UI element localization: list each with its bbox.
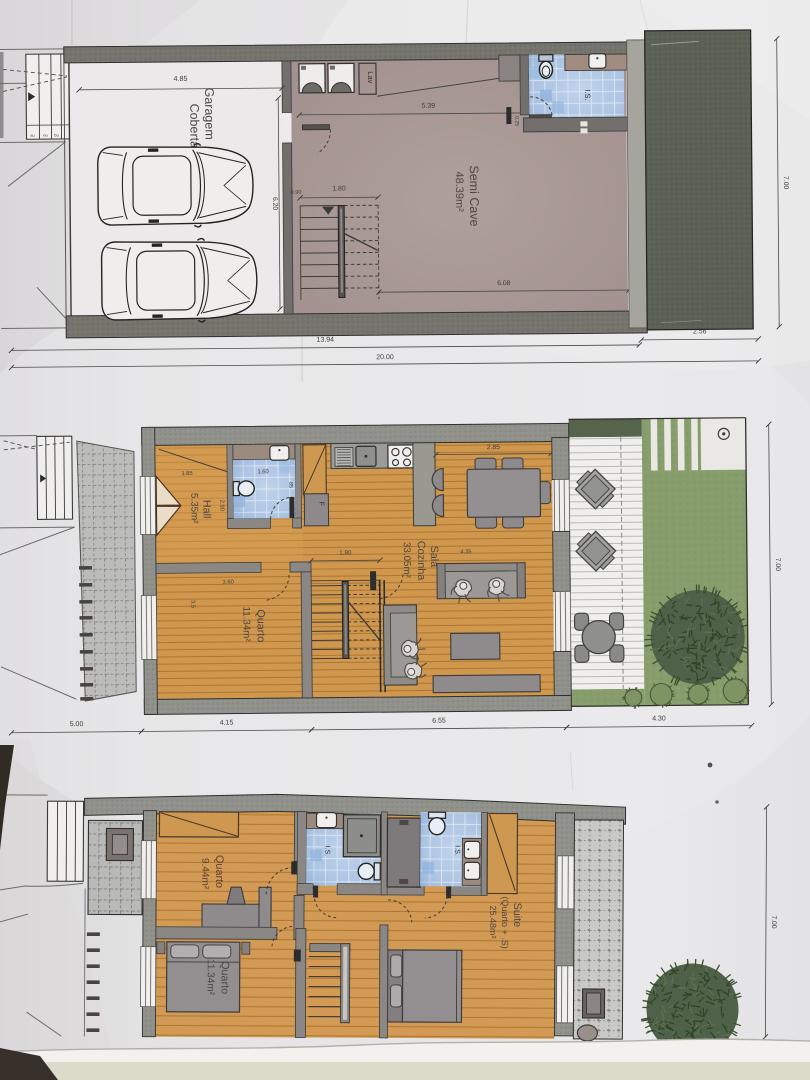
svg-text:0.25: 0.25 — [513, 116, 519, 126]
svg-text:Suite: Suite — [511, 903, 523, 928]
svg-text:(Quarto + .S): (Quarto + .S) — [500, 897, 510, 949]
svg-text:Cozinha: Cozinha — [415, 541, 427, 581]
svg-text:Quarto: Quarto — [219, 961, 231, 994]
svg-text:13.94: 13.94 — [317, 337, 335, 344]
svg-text:5.00: 5.00 — [70, 721, 84, 728]
svg-text:1.80: 1.80 — [339, 549, 352, 556]
svg-text:I.S.: I.S. — [583, 89, 592, 100]
svg-text:4.35: 4.35 — [460, 549, 471, 555]
svg-text:4.15: 4.15 — [220, 720, 234, 727]
svg-text:9.44m²: 9.44m² — [199, 858, 210, 890]
svg-text:6.20: 6.20 — [271, 197, 278, 211]
svg-text:2.85: 2.85 — [487, 444, 501, 451]
svg-text:Hall: Hall — [200, 500, 212, 519]
svg-text:Garagem: Garagem — [202, 88, 216, 140]
svg-text:33.05m²: 33.05m² — [401, 542, 412, 579]
svg-text:7.00: 7.00 — [774, 558, 781, 572]
svg-text:85: 85 — [287, 482, 293, 488]
svg-text:2.90: 2.90 — [218, 500, 224, 511]
svg-text:3.5: 3.5 — [189, 600, 195, 608]
svg-text:20.00: 20.00 — [376, 354, 394, 361]
svg-text:11.34m²: 11.34m² — [240, 606, 251, 642]
svg-text:6.55: 6.55 — [432, 718, 446, 725]
svg-text:11.34m²: 11.34m² — [205, 959, 216, 996]
svg-text:Lav: Lav — [366, 71, 375, 83]
svg-text:0.90: 0.90 — [291, 190, 302, 196]
svg-text:1.60: 1.60 — [257, 469, 268, 475]
svg-text:4.85: 4.85 — [173, 74, 187, 83]
svg-text:5.35m²: 5.35m² — [188, 493, 199, 524]
svg-text:Quarto: Quarto — [213, 855, 225, 888]
svg-text:48.39m²: 48.39m² — [453, 171, 465, 212]
svg-text:7.00: 7.00 — [782, 176, 789, 190]
svg-text:su: su — [30, 133, 34, 138]
svg-text:7.00: 7.00 — [770, 915, 777, 928]
svg-text:4.30: 4.30 — [652, 715, 666, 722]
svg-text:2.56: 2.56 — [693, 328, 707, 335]
svg-text:F: F — [317, 502, 324, 506]
svg-text:1.85: 1.85 — [181, 471, 192, 477]
svg-text:25.48m²: 25.48m² — [488, 905, 498, 938]
svg-text:6.08: 6.08 — [497, 280, 511, 287]
svg-text:5.39: 5.39 — [421, 103, 435, 110]
svg-text:I.S.: I.S. — [323, 846, 330, 857]
svg-text:1.80: 1.80 — [332, 185, 346, 192]
svg-text:Coberta: Coberta — [187, 103, 201, 148]
svg-text:I.S.: I.S. — [453, 845, 460, 856]
svg-text:Quarto: Quarto — [254, 609, 266, 642]
svg-text:Semi Cave: Semi Cave — [467, 165, 482, 226]
svg-text:3.60: 3.60 — [222, 580, 233, 586]
